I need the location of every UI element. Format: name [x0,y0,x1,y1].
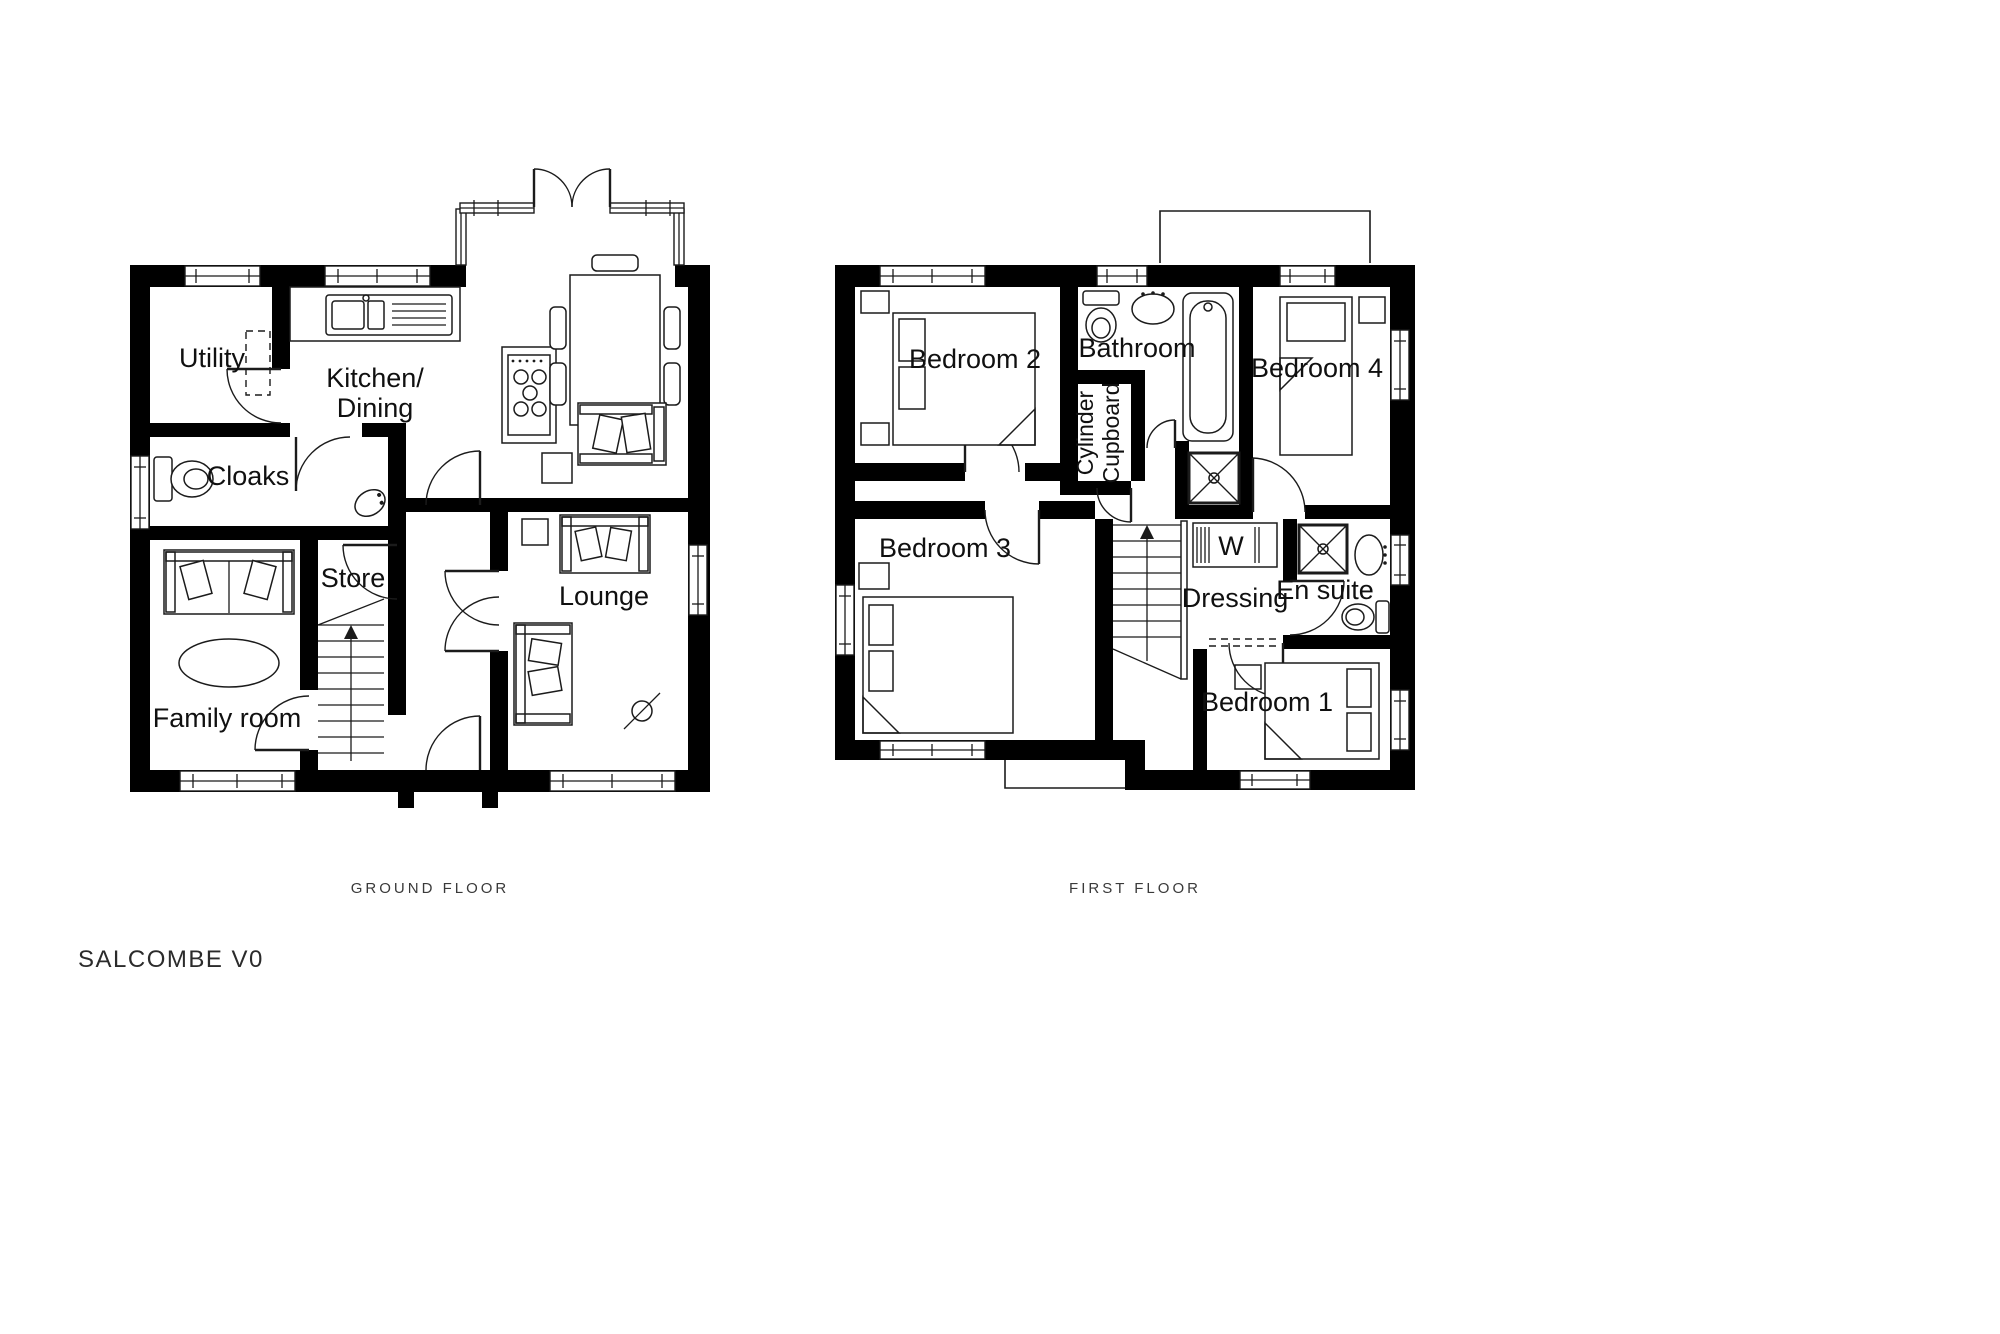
label-cylinder-line1: Cylinder [1072,390,1098,475]
bedroom1-side-window [1391,690,1409,750]
lounge-sofa-left [514,623,572,725]
bay-window-top-right [610,200,684,216]
kitchen-sink [326,295,452,335]
label-kitchen-line1: Kitchen/ [326,363,424,393]
ground-floor-caption: GROUND FLOOR [230,880,630,897]
label-bedroom1: Bedroom 1 [1201,687,1333,717]
bay-window-left [456,209,466,265]
lounge-window [550,771,675,791]
label-wardrobe: W [1218,531,1244,561]
bay-window-right [674,209,684,265]
bedroom4-top-window [1280,266,1335,286]
side-table [542,453,572,483]
bedroom4-side-window [1391,330,1409,400]
ground-floor-plan: Utility Cloaks Kitchen/ Dining Store Fam… [130,155,710,823]
label-bathroom: Bathroom [1078,333,1195,363]
bathroom-door [1147,420,1175,448]
bed-bedroom3 [859,563,1013,733]
cloaks-window [131,456,149,529]
lounge-sofa-top [560,515,650,573]
cloaks-basin [350,484,390,521]
label-bedroom4: Bedroom 4 [1251,353,1383,383]
porch-outline [1005,760,1140,788]
lounge-side-table [522,519,548,545]
kitchen-window [325,266,430,286]
bedroom4-door [1253,458,1305,512]
bedroom1-bottom-window [1240,771,1310,789]
appliance-space [246,331,270,395]
bathroom-basin [1132,291,1174,324]
bedroom3-bottom-window [880,741,985,759]
coffee-table [179,639,279,687]
ensuite-toilet [1342,601,1389,633]
label-ensuite: En suite [1276,575,1374,605]
front-door [426,716,480,770]
label-utility: Utility [179,343,245,373]
ensuite-shower [1299,525,1347,573]
family-window [180,771,295,791]
cloaks-toilet [154,457,213,501]
lounge-side-window [689,545,707,615]
kitchen-door [426,451,480,505]
hob [508,355,550,435]
label-bedroom3: Bedroom 3 [879,533,1011,563]
lounge-double-doors [445,571,499,651]
utility-window [185,266,260,286]
floorplan-page: Utility Cloaks Kitchen/ Dining Store Fam… [0,0,2000,1334]
label-bedroom2: Bedroom 2 [909,344,1041,374]
light-symbol [624,693,660,729]
first-stairs [1113,521,1187,679]
french-doors [534,169,610,207]
cloaks-door [296,437,350,491]
bathroom-shower [1189,453,1239,503]
utility-door [227,369,281,423]
snug-sofa [578,403,666,465]
bedroom2-window [880,266,985,286]
ensuite-side-window [1391,535,1409,585]
bay-window-top-left [460,200,534,216]
bedroom3-side-window [836,585,854,655]
label-family-room: Family room [153,703,302,733]
bathroom-window [1097,266,1147,286]
dining-bay [456,169,684,265]
family-sofa [164,550,294,614]
bath [1183,293,1233,441]
ensuite-basin [1355,535,1387,575]
roof-outline [1160,211,1370,263]
label-cloaks: Cloaks [207,461,290,491]
label-dressing: Dressing [1182,583,1289,613]
label-cylinder-line2: Cupboard [1098,382,1124,483]
stairs-up [318,599,384,761]
label-kitchen-line2: Dining [337,393,414,423]
label-lounge: Lounge [559,581,649,611]
first-floor-caption: FIRST FLOOR [935,880,1335,897]
plan-title: SALCOMBE V0 [78,946,264,974]
label-store: Store [321,563,386,593]
first-floor-plan: Bedroom 2 Bathroom Bedroom 4 Cylinder Cu… [835,205,1415,800]
